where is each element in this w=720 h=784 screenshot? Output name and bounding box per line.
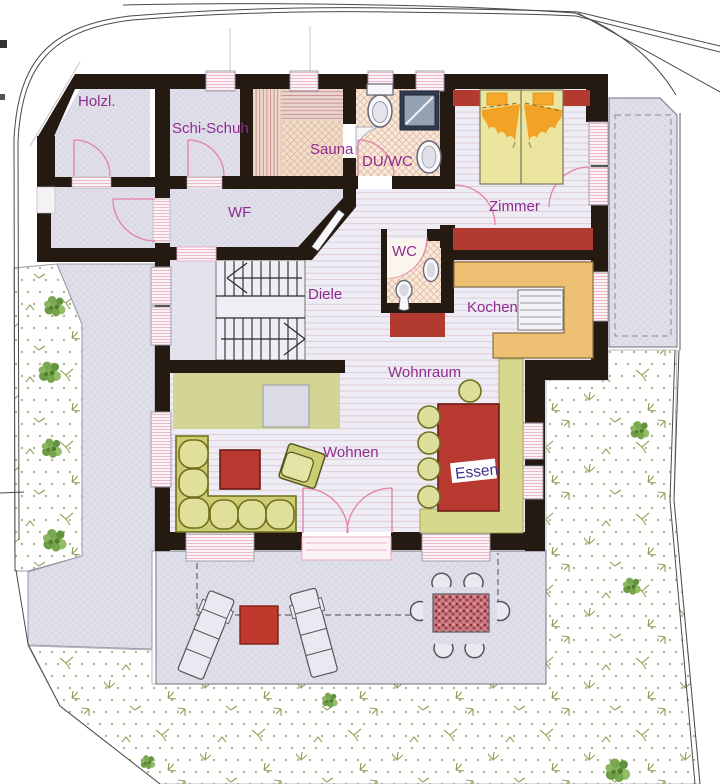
- svg-text:Kochen: Kochen: [467, 299, 518, 316]
- svg-text:Wohnen: Wohnen: [323, 444, 379, 461]
- svg-text:Sauna: Sauna: [310, 141, 354, 158]
- svg-text:Holzl.: Holzl.: [78, 93, 116, 110]
- svg-text:Schi-Schuh: Schi-Schuh: [172, 120, 249, 137]
- svg-text:Diele: Diele: [308, 286, 342, 303]
- svg-text:WC: WC: [392, 243, 417, 260]
- svg-text:WF: WF: [228, 204, 251, 221]
- svg-text:DU/WC: DU/WC: [362, 153, 413, 170]
- svg-text:Wohnraum: Wohnraum: [388, 364, 461, 381]
- svg-text:Zimmer: Zimmer: [489, 198, 540, 215]
